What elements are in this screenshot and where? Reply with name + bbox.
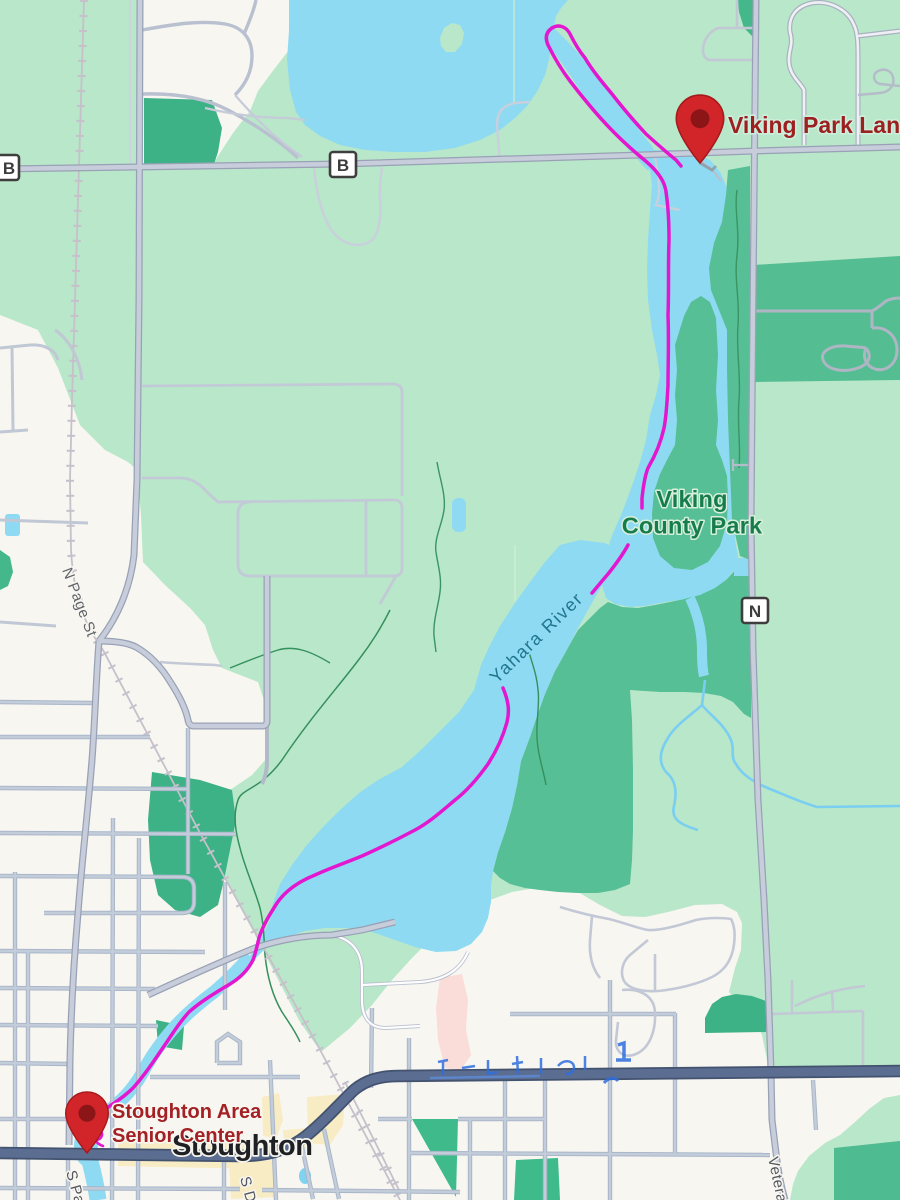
svg-text:B: B [3,159,15,178]
svg-text:Senior Center: Senior Center [112,1125,243,1147]
svg-text:Stoughton Area: Stoughton Area [112,1101,262,1123]
svg-text:Viking Park Landi: Viking Park Landi [728,112,900,138]
svg-text:N: N [749,602,761,621]
svg-text:Viking: Viking [656,486,727,512]
svg-text:B: B [337,156,349,175]
svg-text:County Park: County Park [622,513,763,539]
